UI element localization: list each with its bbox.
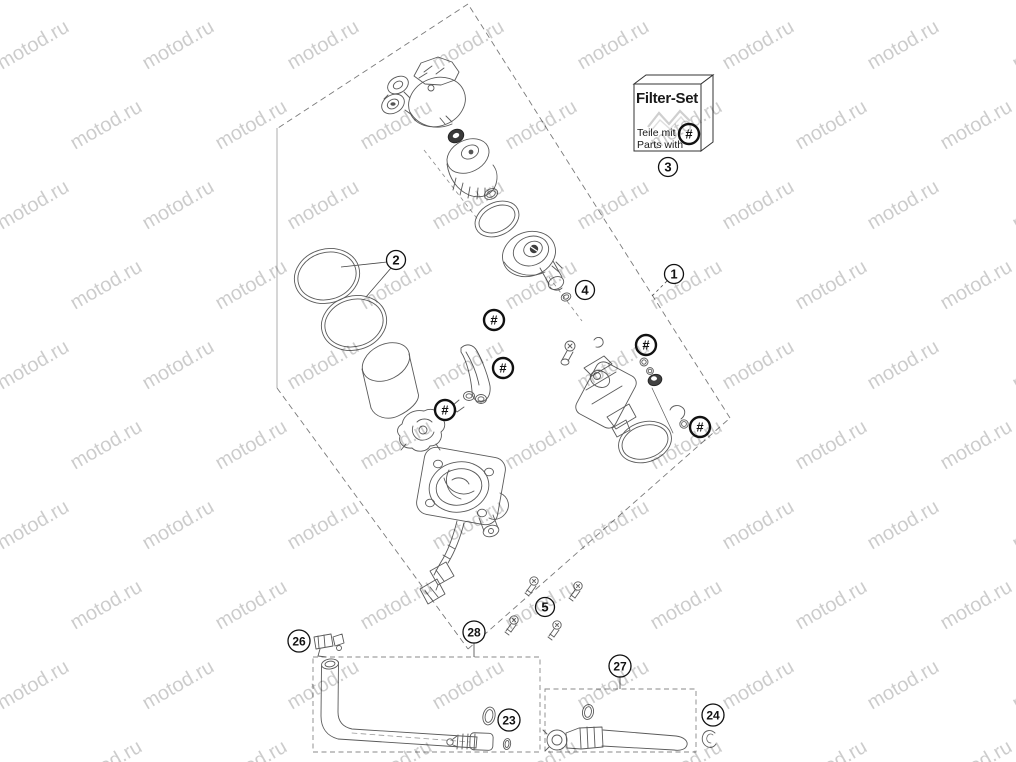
watermark-text: motod.ru — [0, 256, 1, 315]
watermark-text: motod.ru — [429, 496, 508, 555]
watermark-text: motod.ru — [357, 576, 436, 635]
watermark-text: motod.ru — [864, 496, 943, 555]
watermark-text: motod.ru — [357, 416, 436, 475]
callout-3: 3 — [659, 158, 678, 177]
diagram-canvas: Filter-Set Teile mit Parts with 12345232… — [0, 0, 1016, 762]
watermark-text: motod.ru — [0, 736, 1, 762]
watermark-text: motod.ru — [0, 576, 1, 635]
watermark-text: motod.ru — [502, 576, 581, 635]
part-clamp-26 — [314, 634, 344, 657]
watermark-text: motod.ru — [139, 176, 218, 235]
watermark-text: motod.ru — [0, 96, 1, 155]
watermark-text: motod.ru — [212, 576, 291, 635]
watermark-text: motod.ru — [1009, 496, 1016, 555]
watermark-text: motod.ru — [139, 656, 218, 715]
callout-label: 23 — [502, 713, 516, 727]
watermark-text: motod.ru — [502, 96, 581, 155]
watermark-text: motod.ru — [284, 176, 363, 235]
watermark-text: motod.ru — [864, 16, 943, 75]
watermark-text: motod.ru — [719, 176, 798, 235]
callout-2: 2 — [387, 251, 406, 270]
watermark-text: motod.ru — [647, 256, 726, 315]
watermark-text: motod.ru — [67, 416, 146, 475]
watermark-text: motod.ru — [1009, 176, 1016, 235]
watermark-text: motod.ru — [864, 336, 943, 395]
watermark-text: motod.ru — [357, 736, 436, 762]
callout-hash: # — [435, 400, 455, 420]
callout-label: 2 — [392, 253, 399, 268]
parts-diagram: Filter-Set Teile mit Parts with 12345232… — [0, 0, 1016, 762]
watermark-text: motod.ru — [429, 16, 508, 75]
watermark-text: motod.ru — [429, 656, 508, 715]
watermark-text: motod.ru — [67, 96, 146, 155]
part-dark-seal-ring — [446, 127, 466, 146]
watermark-text: motod.ru — [502, 416, 581, 475]
watermark-layer: motod.rumotod.rumotod.rumotod.rumotod.ru… — [0, 0, 1016, 762]
watermark-text: motod.ru — [0, 496, 73, 555]
watermark-text: motod.ru — [937, 576, 1016, 635]
watermark-text: motod.ru — [284, 336, 363, 395]
watermark-text: motod.ru — [792, 256, 871, 315]
watermark-text: motod.ru — [0, 336, 73, 395]
watermark-text: motod.ru — [647, 576, 726, 635]
watermark-text: motod.ru — [0, 656, 73, 715]
watermark-text: motod.ru — [0, 416, 1, 475]
watermark-text: motod.ru — [212, 96, 291, 155]
watermark-text: motod.ru — [574, 176, 653, 235]
watermark-text: motod.ru — [67, 256, 146, 315]
part-motor-small-parts — [640, 358, 688, 433]
watermark-text: motod.ru — [574, 16, 653, 75]
watermark-text: motod.ru — [792, 96, 871, 155]
callout-label: 24 — [706, 708, 720, 722]
watermark-text: motod.ru — [0, 176, 73, 235]
watermark-text: motod.ru — [139, 16, 218, 75]
watermark-text: motod.ru — [502, 736, 581, 762]
callout-label: 4 — [581, 283, 589, 298]
watermark-text: motod.ru — [792, 576, 871, 635]
watermark-text: motod.ru — [719, 656, 798, 715]
watermark-text: motod.ru — [574, 496, 653, 555]
watermark-text: motod.ru — [1009, 336, 1016, 395]
watermark-text: motod.ru — [284, 656, 363, 715]
callout-label: # — [499, 361, 507, 376]
watermark-text: motod.ru — [937, 96, 1016, 155]
watermark-text: motod.ru — [212, 256, 291, 315]
watermark-text: motod.ru — [212, 416, 291, 475]
exploded-parts — [288, 57, 716, 751]
watermark-text: motod.ru — [864, 656, 943, 715]
callout-label: # — [441, 403, 449, 418]
watermark-text: motod.ru — [0, 16, 73, 75]
watermark-text: motod.ru — [284, 496, 363, 555]
watermark-text: motod.ru — [719, 16, 798, 75]
watermark-text: motod.ru — [67, 576, 146, 635]
watermark-text: motod.ru — [212, 736, 291, 762]
watermark-text: motod.ru — [284, 16, 363, 75]
callout-hash: # — [484, 310, 504, 330]
watermark-text: motod.ru — [139, 336, 218, 395]
callout-label: 26 — [292, 634, 306, 648]
callout-26: 26 — [288, 630, 310, 652]
callout-23: 23 — [498, 709, 520, 731]
watermark-text: motod.ru — [139, 496, 218, 555]
watermark-text: motod.ru — [937, 736, 1016, 762]
watermark-text: motod.ru — [792, 736, 871, 762]
callout-label: # — [490, 313, 498, 328]
watermark-text: motod.ru — [719, 336, 798, 395]
callout-label: 28 — [467, 625, 481, 639]
callout-layer: 123452324262728###### — [288, 124, 724, 731]
watermark-text: motod.ru — [1009, 656, 1016, 715]
watermark-text: motod.ru — [429, 176, 508, 235]
watermark-text: motod.ru — [937, 256, 1016, 315]
watermark-text: motod.ru — [1009, 16, 1016, 75]
watermark-text: motod.ru — [719, 496, 798, 555]
watermark-text: motod.ru — [864, 176, 943, 235]
watermark-text: motod.ru — [502, 256, 581, 315]
callout-28: 28 — [463, 621, 485, 643]
callout-4: 4 — [576, 281, 595, 300]
watermark-text: motod.ru — [67, 736, 146, 762]
callout-24: 24 — [702, 704, 724, 726]
filter-set-title: Filter-Set — [636, 90, 698, 107]
callout-label: 3 — [664, 160, 671, 175]
watermark-text: motod.ru — [792, 416, 871, 475]
leader-lines — [341, 262, 667, 689]
watermark-text: motod.ru — [937, 416, 1016, 475]
